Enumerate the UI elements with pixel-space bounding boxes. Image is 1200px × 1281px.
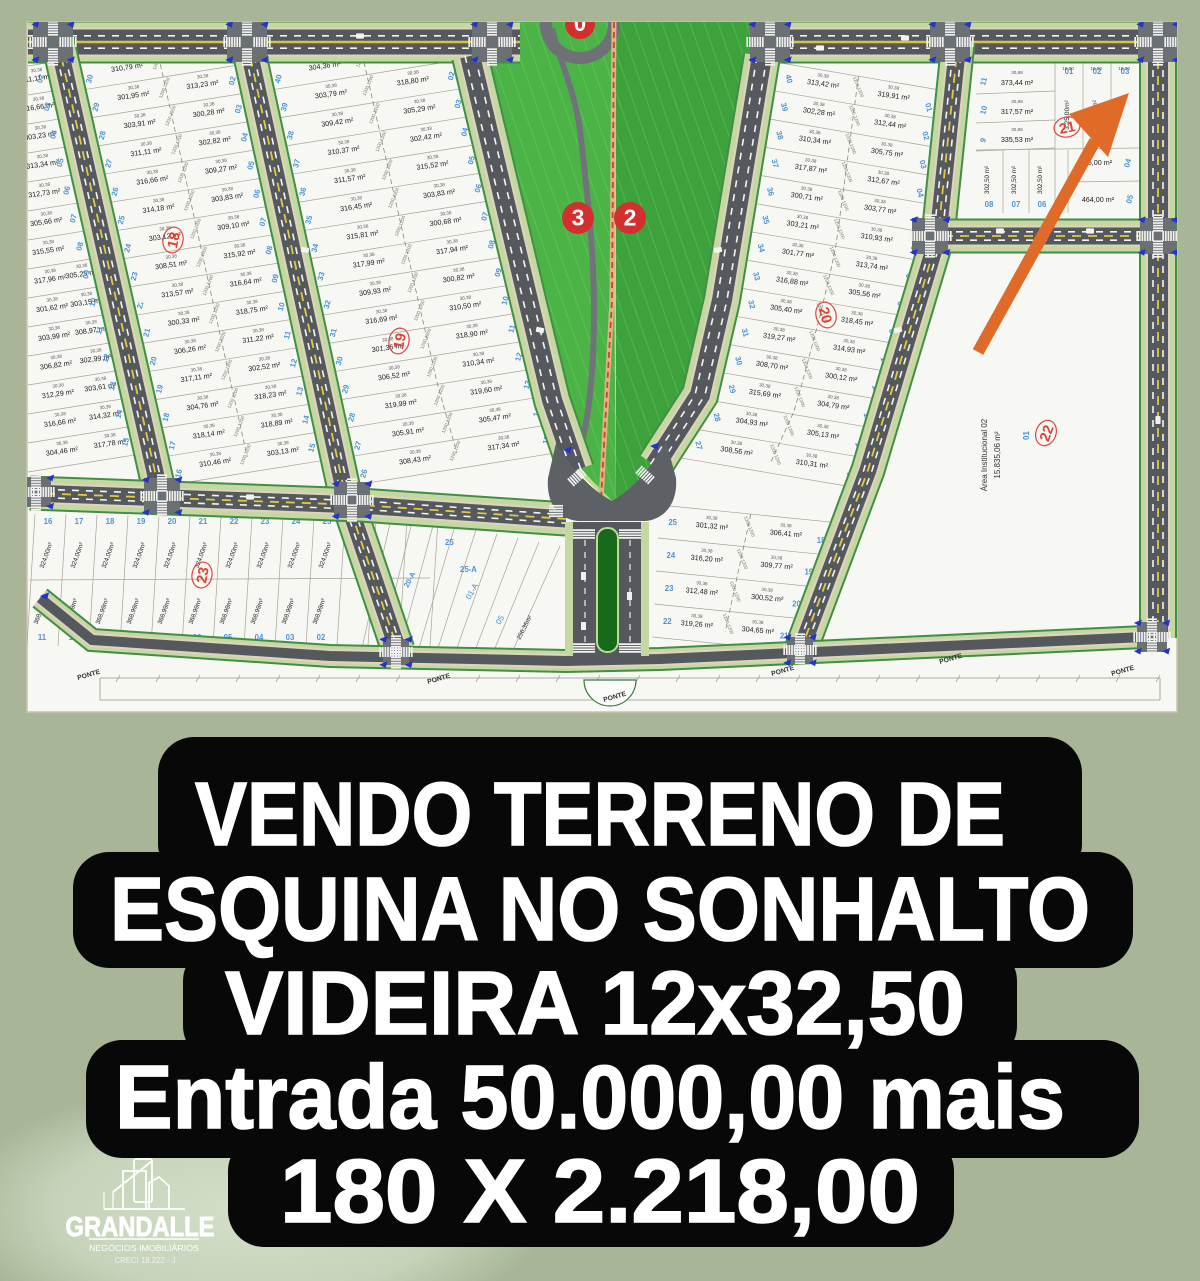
- svg-text:180 X 2.218,00: 180 X 2.218,00: [280, 1142, 920, 1242]
- svg-text:2: 2: [624, 205, 637, 231]
- svg-text:25: 25: [445, 538, 454, 547]
- svg-text:03: 03: [286, 633, 295, 642]
- svg-text:30,38: 30,38: [706, 515, 718, 521]
- svg-text:16: 16: [44, 517, 53, 526]
- svg-text:373,44 m²: 373,44 m²: [1001, 78, 1034, 87]
- svg-text:02: 02: [317, 633, 326, 642]
- svg-text:23: 23: [194, 566, 213, 585]
- svg-text:21: 21: [1058, 119, 1077, 138]
- svg-text:Área Institucional 02: Área Institucional 02: [980, 418, 989, 491]
- svg-text:10,00: 10,00: [1062, 66, 1074, 71]
- svg-text:30,38: 30,38: [696, 580, 708, 586]
- svg-text:07: 07: [1012, 200, 1021, 209]
- svg-text:30,88: 30,88: [1011, 99, 1023, 104]
- svg-text:17: 17: [75, 517, 84, 526]
- svg-text:30,38: 30,38: [691, 613, 703, 619]
- svg-text:30,88: 30,88: [1011, 127, 1023, 132]
- svg-text:ESQUINA NO SONHALTO: ESQUINA NO SONHALTO: [110, 860, 1090, 960]
- svg-text:18: 18: [165, 231, 184, 250]
- svg-text:VENDO TERRENO DE: VENDO TERRENO DE: [195, 765, 1005, 865]
- svg-text:335,53 m²: 335,53 m²: [1001, 135, 1034, 144]
- svg-text:18: 18: [106, 517, 115, 526]
- svg-text:Entrada 50.000,00 mais: Entrada 50.000,00 mais: [115, 1048, 1065, 1148]
- svg-text:GRANDALLE: GRANDALLE: [66, 1211, 215, 1242]
- svg-text:01: 01: [1022, 431, 1031, 440]
- svg-text:25: 25: [668, 518, 677, 527]
- svg-text:302,50 m²: 302,50 m²: [1011, 166, 1018, 194]
- svg-text:30,38: 30,38: [752, 619, 764, 625]
- svg-text:30,38: 30,38: [761, 587, 773, 593]
- svg-text:3: 3: [572, 205, 585, 231]
- svg-text:11: 11: [38, 633, 47, 642]
- svg-text:30,38: 30,38: [701, 548, 713, 554]
- svg-text:302,50 m²: 302,50 m²: [984, 166, 991, 194]
- svg-text:10,00: 10,00: [1090, 66, 1102, 71]
- svg-text:22: 22: [230, 517, 239, 526]
- svg-text:VIDEIRA 12x32,50: VIDEIRA 12x32,50: [225, 954, 965, 1054]
- svg-text:CRECI 18.222 - J: CRECI 18.222 - J: [114, 1256, 175, 1265]
- svg-text:23: 23: [665, 584, 674, 593]
- svg-text:10,00: 10,00: [1118, 66, 1130, 71]
- svg-text:06: 06: [1038, 200, 1047, 209]
- svg-text:30,38: 30,38: [771, 555, 783, 561]
- svg-text:302,50 m²: 302,50 m²: [1037, 166, 1044, 194]
- svg-text:15.835,06 m²: 15.835,06 m²: [993, 431, 1002, 478]
- svg-text:30,38: 30,38: [780, 522, 792, 528]
- svg-text:19: 19: [137, 517, 146, 526]
- svg-text:24: 24: [667, 551, 676, 560]
- svg-text:317,57 m²: 317,57 m²: [1001, 107, 1034, 116]
- svg-text:22: 22: [663, 617, 672, 626]
- svg-text:30,88: 30,88: [1011, 70, 1023, 75]
- svg-text:08: 08: [985, 200, 994, 209]
- svg-text:25-A: 25-A: [460, 565, 477, 574]
- svg-text:21: 21: [199, 517, 208, 526]
- svg-text:464,00 m²: 464,00 m²: [1082, 195, 1115, 204]
- svg-text:19: 19: [391, 332, 410, 351]
- svg-text:20: 20: [168, 517, 177, 526]
- svg-text:NEGÓCIOS IMOBILIÁRIOS: NEGÓCIOS IMOBILIÁRIOS: [89, 1243, 199, 1253]
